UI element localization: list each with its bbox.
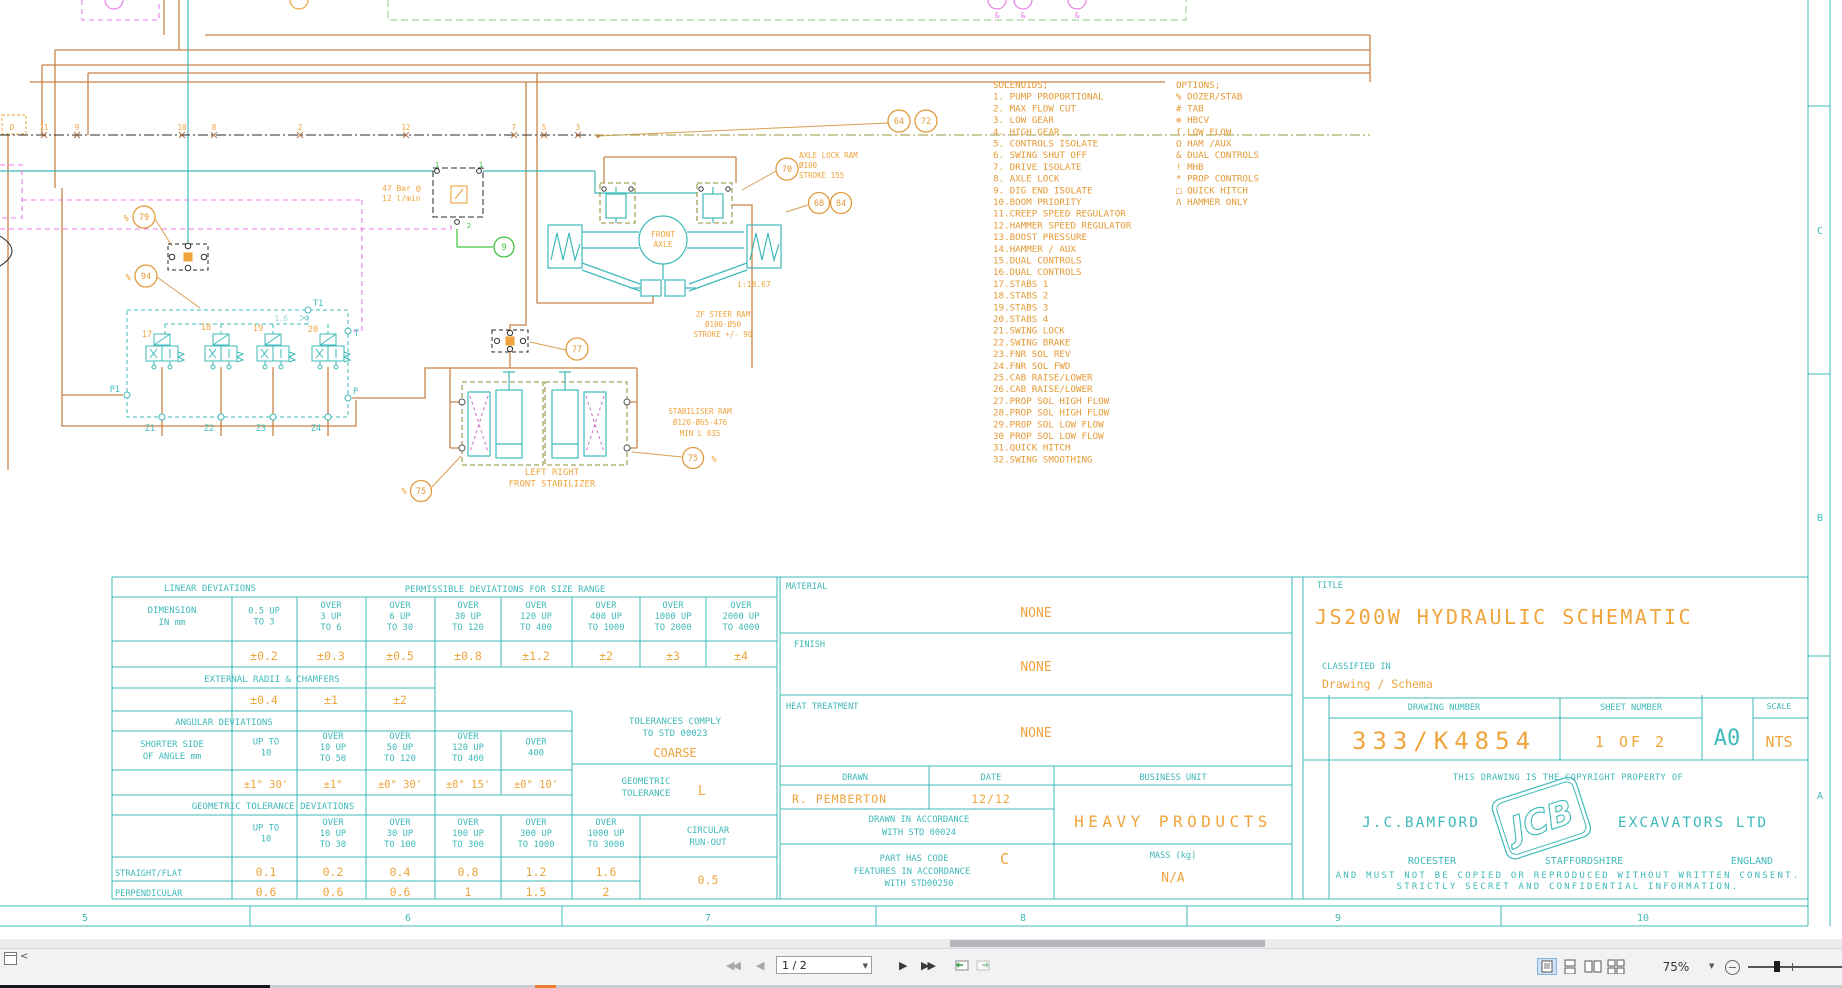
items-4: Ω HAM /AUX (1176, 139, 1232, 150)
1: OVER10 UPTO 30 (320, 818, 346, 850)
items-12: 13.BOOST PRESSURE (993, 232, 1087, 243)
bottom-4: 9 (1335, 913, 1341, 924)
5: OVER400 UPTO 1000 (587, 601, 624, 633)
0-line1: TO 3 (253, 618, 274, 628)
3-line2: TO 120 (452, 623, 484, 633)
facing-pages-view-icon[interactable] (1583, 958, 1603, 975)
zoom-dropdown-caret-icon[interactable]: ▼ (1709, 962, 1714, 970)
last-page-button[interactable]: ▶▶ (921, 959, 934, 973)
1-line2: TO 50 (320, 754, 346, 764)
runout_label-line1: RUN-OUT (689, 838, 727, 848)
items-2: ⊗ HBCV (1176, 115, 1210, 126)
callout-c77: 77 (572, 345, 582, 355)
tolerances-geo_tol_value: L (698, 784, 706, 799)
bus_nodes-3: 10 (177, 123, 187, 132)
tolerances-coarse: COARSE (653, 746, 696, 760)
drawing-address2: STAFFORDSHIRE (1545, 856, 1623, 867)
items-0: 1. PUMP PROPORTIONAL (993, 92, 1104, 103)
5: OVER1000 UPTO 3000 (587, 818, 624, 850)
items-25: 26.CAB RAISE/LOWER (993, 384, 1093, 395)
5-line2: TO 1000 (587, 623, 624, 633)
linear_values-2: ±0.5 (386, 649, 414, 663)
2: OVER30 UPTO 100 (384, 818, 416, 850)
angular_values-1: ±1° (324, 779, 343, 791)
previous-view-icon[interactable] (953, 958, 970, 972)
items-8: □ QUICK HITCH (1176, 185, 1248, 196)
straight_values-4: 1.2 (526, 865, 547, 879)
items-9: 10.BOOM PRIORITY (993, 197, 1082, 208)
items-7: * PROP CONTROLS (1176, 174, 1259, 185)
drawing-company_right: EXCAVATORS LTD (1618, 815, 1768, 831)
items-21: 22.SWING BRAKE (993, 337, 1070, 348)
drawing-title: JS200W HYDRAULIC SCHEMATIC (1315, 605, 1693, 629)
bus_nodes-1: 11 (39, 123, 48, 132)
pressure-line1: 12 l/min (382, 194, 421, 203)
straight_values-2: 0.4 (390, 865, 411, 879)
schematic-valve_port_1: 1 (435, 161, 439, 169)
green-dashed-frame (388, 0, 1186, 20)
cyan-hydraulic-lines (0, 0, 747, 291)
5-line0: OVER (595, 818, 617, 828)
perp_values-2: 0.6 (390, 885, 411, 899)
angular_values-2: ±0° 30' (378, 779, 422, 791)
1: OVER10 UPTO 50 (320, 732, 346, 764)
orange-hydraulic-lines (8, 0, 1370, 470)
3-line0: OVER (457, 732, 479, 742)
pressure: 47 Bar @12 l/min (382, 184, 421, 203)
stabilizer_caption-line1: FRONT STABILIZER (509, 480, 596, 490)
orange-valve-components (184, 186, 514, 345)
angular_values-4: ±0° 10' (514, 779, 558, 791)
items-9: Λ HAMMER ONLY (1176, 197, 1248, 208)
items-5: 6. SWING SHUT OFF (993, 150, 1087, 161)
items-26: 27.PROP SOL HIGH FLOW (993, 396, 1110, 407)
stabiliser_ram-line2: MIN L 835 (680, 429, 721, 438)
drawing-sheet: JCB LINEAR DEVIATIONSPERMISSIBLE DEVIATI… (0, 0, 1842, 940)
4-line2: TO 1000 (517, 840, 554, 850)
drawing-scale_label: SCALE (1767, 701, 1792, 711)
page-number-input[interactable]: 1 / 2 ▼ (776, 956, 872, 974)
drawing-code_line3: WITH STD00250 (885, 879, 954, 889)
5-line1: 1000 UP (587, 829, 624, 839)
horizontal-scrollbar[interactable] (0, 939, 1842, 948)
drawing-classified_value: Drawing / Schema (1322, 677, 1433, 691)
1: OVER3 UPTO 6 (320, 601, 342, 633)
ports-p: P (353, 387, 358, 397)
ports-t1: T1 (313, 299, 323, 309)
tolerances-linear_header: LINEAR DEVIATIONS (164, 584, 256, 594)
drawing-sheet_number_label: SHEET NUMBER (1600, 703, 1663, 713)
ports-p1: P1 (110, 385, 120, 395)
4: OVER400 (525, 738, 547, 759)
orifice-symbol (300, 315, 308, 321)
axle_lock_ram: AXLE LOCK RAMØ100STROKE 155 (799, 151, 858, 180)
valve_ids-3: 20 (308, 325, 318, 335)
4-line0: OVER (525, 738, 547, 748)
perp_values-4: 1.5 (526, 885, 547, 899)
zoom-out-button[interactable] (1725, 960, 1740, 975)
2-line2: TO 120 (384, 754, 416, 764)
bus_nodes-9: 3 (576, 123, 581, 132)
7-line0: OVER (730, 601, 752, 611)
items-31: 32.SWING SMOOTHING (993, 454, 1093, 465)
4-line0: OVER (525, 601, 547, 611)
items-13: 14.HAMMER / AUX (993, 244, 1076, 255)
straight_values-0: 0.1 (256, 865, 277, 879)
zoom-level-label[interactable]: 75% (1656, 960, 1696, 974)
drawing-code_line1: PART HAS CODE (880, 854, 949, 864)
0-line0: UP TO (253, 738, 279, 748)
stabilizer_caption-line0: LEFT RIGHT (525, 468, 580, 478)
drawing-date: 12/12 (971, 792, 1011, 806)
callout-c68: 68 (814, 199, 824, 209)
drawing-drawn: R. PEMBERTON (792, 792, 887, 806)
page-number-value: 1 / 2 (782, 959, 807, 972)
bottom-0: 5 (82, 913, 88, 924)
1-line2: TO 30 (320, 840, 346, 850)
items-19: 20.STABS 4 (993, 314, 1049, 325)
bottom-3: 8 (1020, 913, 1026, 924)
drawing-heat_value: NONE (1020, 726, 1051, 741)
runout_label-line0: CIRCULAR (687, 826, 730, 836)
options-header: OPTIONS; (1176, 80, 1220, 91)
0-line1: 10 (261, 749, 272, 759)
1-line1: 3 UP (320, 612, 341, 622)
front_axle-line1: AXLE (653, 240, 672, 249)
stabilizer_caption: LEFT RIGHTFRONT STABILIZER (509, 468, 596, 490)
items-10: 11.CREEP SPEED REGULATOR (993, 209, 1126, 220)
ampersand-mark: & (1021, 11, 1026, 20)
schematic-valve_port_2: 2 (467, 222, 471, 230)
3-line2: TO 300 (452, 840, 484, 850)
right-2: A (1817, 791, 1823, 802)
angular_values-3: ±0° 15' (446, 779, 490, 791)
shorter_label-line1: OF ANGLE mm (143, 752, 201, 762)
drawing-sheet_number: 1 OF 2 (1595, 733, 1667, 751)
drawing-material_label: MATERIAL (786, 582, 827, 592)
collapse-panel-icon[interactable]: < (20, 951, 28, 962)
linear_values-4: ±1.2 (522, 649, 550, 663)
1-line1: 10 UP (320, 743, 346, 753)
axle_lock_ram-line0: AXLE LOCK RAM (799, 151, 858, 160)
external_values-0: ±0.4 (250, 693, 278, 707)
drawing-finish_value: NONE (1020, 660, 1051, 675)
tolerances-angular_header: ANGULAR DEVIATIONS (175, 718, 273, 728)
3: OVER100 UPTO 300 (452, 818, 484, 850)
tolerances-straight_label: STRAIGHT/FLAT (115, 869, 182, 879)
jcb-logo: JCB (1490, 775, 1593, 861)
dimension_label: DIMENSIONIN mm (148, 606, 197, 628)
drawing-code_line2: FEATURES IN ACCORDANCE (854, 867, 971, 877)
drawing-copyright: THIS DRAWING IS THE COPYRIGHT PROPERTY O… (1453, 773, 1683, 783)
4-line1: 120 UP (520, 612, 552, 622)
3-line0: OVER (457, 601, 479, 611)
valve_ids-0: 17 (142, 330, 152, 340)
items-15: 16.DUAL CONTROLS (993, 267, 1082, 278)
next-view-icon[interactable] (975, 958, 992, 972)
tolerances-permissible_header: PERMISSIBLE DEVIATIONS FOR SIZE RANGE (405, 585, 605, 595)
steer_ram: ZF STEER RAMØ100-Ø50STROKE +/- 90 (694, 310, 753, 339)
callout-c9: 9 (501, 243, 506, 253)
shorter_label-line0: SHORTER SIDE (140, 740, 204, 750)
next-page-button[interactable]: ▶ (899, 959, 907, 973)
5-line2: TO 3000 (587, 840, 624, 850)
drawing-mass_value: N/A (1161, 871, 1185, 886)
percent-mark: % (123, 214, 128, 224)
2-line2: TO 100 (384, 840, 416, 850)
tolerances-comply1: TOLERANCES COMPLY (629, 717, 722, 727)
angular_values-0: ±1° 30' (244, 779, 288, 791)
schematic-ratio: i:18.67 (737, 280, 771, 289)
linear_values-1: ±0.3 (317, 649, 345, 663)
perp_values-5: 2 (603, 885, 610, 899)
bottom-2: 7 (705, 913, 711, 924)
4-line2: TO 400 (520, 623, 552, 633)
bus_nodes-2: 9 (75, 123, 80, 132)
pressure-line0: 47 Bar @ (382, 184, 421, 193)
2-line1: 6 UP (389, 612, 410, 622)
4-line1: 400 (528, 749, 544, 759)
first-page-button[interactable]: ◀◀ (726, 959, 739, 973)
zoom-slider-handle[interactable] (1774, 961, 1780, 972)
items-22: 23.FNR SOL REV (993, 349, 1071, 360)
drawing-drawing_number: 333/K4854 (1352, 727, 1536, 755)
valve_ids-1: 18 (201, 323, 211, 333)
percent-mark: % (401, 487, 406, 497)
front_axle-line0: FRONT (651, 230, 675, 239)
items-29: 30 PROP SOL LOW FLOW (993, 431, 1104, 442)
linear_values-0: ±0.2 (250, 649, 278, 663)
tolerances-comply2: TO STD 00023 (642, 729, 707, 739)
drawing-address1: ROCESTER (1408, 856, 1457, 867)
1-line1: 10 UP (320, 829, 346, 839)
steer_ram-line0: ZF STEER RAM (696, 310, 751, 319)
stabiliser_ram-line1: Ø120-Ø65-476 (673, 418, 728, 427)
bus_nodes-6: 12 (401, 123, 410, 132)
2: OVER6 UPTO 30 (387, 601, 413, 633)
items-30: 31.QUICK HITCH (993, 443, 1070, 454)
bus_nodes-0: D (10, 123, 15, 132)
2-line1: 30 UP (387, 829, 413, 839)
items-8: 9. DIG END ISOLATE (993, 185, 1093, 196)
3: OVER120 UPTO 400 (452, 732, 484, 764)
6-line1: 1000 UP (654, 612, 691, 622)
stabiliser_ram: STABILISER RAMØ120-Ø65-476MIN L 835 (668, 407, 732, 438)
items-28: 29.PROP SOL LOW FLOW (993, 419, 1104, 430)
callout-c75: 75 (416, 487, 426, 497)
bus_nodes-5: 2 (298, 123, 303, 132)
items-1: 2. MAX FLOW CUT (993, 103, 1076, 114)
0-line0: UP TO (253, 824, 279, 834)
callout-c64: 64 (894, 117, 904, 127)
schematic-orifice: 1.6 (274, 314, 288, 323)
2-line0: OVER (389, 601, 411, 611)
schematic-valve_port_1: 1 (479, 161, 483, 169)
3-line1: 100 UP (452, 829, 484, 839)
runout_label: CIRCULARRUN-OUT (687, 826, 730, 848)
cutoff-callout-circles (105, 0, 1086, 9)
tolerances-external_header: EXTERNAL RADII & CHAMFERS (204, 675, 339, 685)
tolerances-geo_tol1: GEOMETRIC (622, 777, 671, 787)
axle_lock_ram-line1: Ø100 (799, 161, 818, 170)
previous-page-button[interactable]: ◀ (756, 959, 764, 973)
7-line2: TO 4000 (722, 623, 759, 633)
0-line1: 10 (261, 835, 272, 845)
3-line1: 30 UP (455, 612, 481, 622)
straight_values-3: 0.8 (458, 865, 479, 879)
items-0: % DOZER/STAB (1176, 92, 1243, 103)
drawing-drawing_number_label: DRAWING NUMBER (1408, 703, 1481, 713)
1-line2: TO 6 (320, 623, 341, 633)
continuous-view-icon[interactable] (1560, 958, 1580, 975)
3-line0: OVER (457, 818, 479, 828)
solenoids-header: SOLENOIDS; (993, 80, 1048, 91)
0: UP TO10 (253, 824, 279, 845)
6-line2: TO 2000 (654, 623, 691, 633)
perp_values-0: 0.6 (256, 885, 277, 899)
callout-c79: 79 (139, 213, 149, 223)
drawing-date_label: DATE (981, 773, 1002, 783)
items-3: ſ LOW FLOW (1176, 127, 1232, 138)
drawing-title_label: TITLE (1317, 581, 1343, 591)
callout-c84: 84 (836, 199, 846, 209)
tolerances-geo_header: GEOMETRIC TOLERANCE DEVIATIONS (192, 802, 355, 812)
external_values-2: ±2 (393, 693, 407, 707)
scrollbar-thumb[interactable] (950, 940, 1265, 947)
items-18: 19.STABS 3 (993, 302, 1048, 313)
5-line1: 400 UP (590, 612, 622, 622)
linear_values-3: ±0.8 (454, 649, 482, 663)
tolerances-runout_value: 0.5 (698, 873, 719, 887)
1-line0: OVER (322, 818, 344, 828)
drawing-material_value: NONE (1020, 606, 1051, 621)
3-line2: TO 400 (452, 754, 484, 764)
tolerances-geo_tol2: TOLERANCE (622, 789, 671, 799)
drawing-legal1: AND MUST NOT BE COPIED OR REPRODUCED WIT… (1336, 871, 1801, 881)
items-24: 25.CAB RAISE/LOWER (993, 373, 1093, 384)
items-1: # TAB (1176, 103, 1204, 114)
items-20: 21.SWING LOCK (993, 326, 1065, 337)
items-6: 7. DRIVE ISOLATE (993, 162, 1082, 173)
drawing-business_unit: HEAVY PRODUCTS (1074, 812, 1272, 831)
bus_nodes-8: 5 (542, 123, 547, 132)
1-line0: OVER (320, 601, 342, 611)
tolerances-perp_label: PERPENDICULAR (115, 889, 183, 899)
shorter_label: SHORTER SIDEOF ANGLE mm (140, 740, 204, 762)
items-7: 8. AXLE LOCK (993, 174, 1060, 185)
2-line2: TO 30 (387, 623, 413, 633)
5-line0: OVER (595, 601, 617, 611)
4-line0: OVER (525, 818, 547, 828)
2-line0: OVER (389, 732, 411, 742)
single-page-view-icon[interactable] (1537, 958, 1557, 975)
front_axle: FRONTAXLE (651, 230, 675, 249)
items-14: 15.DUAL CONTROLS (993, 256, 1082, 267)
valve_ids-2: 19 (253, 324, 263, 334)
ampersand-mark: & (1075, 11, 1080, 20)
items-16: 17.STABS 1 (993, 279, 1048, 290)
z_ports-3: Z4 (311, 424, 321, 434)
bus_nodes-7: 7 (512, 123, 517, 132)
items-5: & DUAL CONTROLS (1176, 150, 1259, 161)
4-line1: 300 UP (520, 829, 552, 839)
solenoid-valve-bank (146, 334, 350, 369)
bus_nodes-4: 8 (212, 123, 217, 132)
drawing-legal2: STRICTLY SECRET AND CONFIDENTIAL INFORMA… (1397, 882, 1740, 892)
drawing-company_left: J.C.BAMFORD (1362, 815, 1480, 831)
linear_values-5: ±2 (599, 649, 613, 663)
dimension_label-line1: IN mm (158, 618, 185, 628)
perp_values-1: 0.6 (323, 885, 344, 899)
items-6: ! MHB (1176, 162, 1204, 173)
z_ports-0: Z1 (145, 424, 155, 434)
drawing-scale: NTS (1765, 733, 1792, 751)
bottom-1: 6 (405, 913, 411, 924)
percent-mark: % (711, 455, 716, 465)
7-line1: 2000 UP (722, 612, 759, 622)
right-0: C (1817, 226, 1823, 237)
drawing-business_unit_label: BUSINESS UNIT (1139, 773, 1206, 783)
steer_ram-line2: STROKE +/- 90 (694, 330, 753, 339)
0-line0: 0.5 UP (248, 607, 280, 617)
bottom-5: 10 (1637, 913, 1649, 924)
6-line0: OVER (662, 601, 684, 611)
ports-t: T (354, 329, 359, 339)
0: UP TO10 (253, 738, 279, 759)
items-4: 5. CONTROLS ISOLATE (993, 139, 1098, 150)
callout-c75: 75 (688, 454, 698, 464)
z_ports-2: Z3 (256, 424, 266, 434)
drawing-mass_label: MASS (kg) (1150, 851, 1197, 861)
drawing-size: A0 (1714, 726, 1741, 751)
z_ports-1: Z2 (204, 424, 214, 434)
zoom-slider-track[interactable] (1748, 966, 1842, 968)
callout-c72: 72 (921, 117, 931, 127)
0: 0.5 UPTO 3 (248, 607, 280, 628)
callout-c70: 70 (782, 165, 792, 175)
drawing-classified_label: CLASSIFIED IN (1322, 662, 1391, 672)
ampersand-mark: & (995, 11, 1000, 20)
green-drain-line (457, 229, 493, 247)
drawing-heat_label: HEAT TREATMENT (786, 702, 858, 712)
drawing-std24_line1: DRAWN IN ACCORDANCE (869, 815, 970, 825)
2-line1: 50 UP (387, 743, 413, 753)
3-line1: 120 UP (452, 743, 484, 753)
straight_values-1: 0.2 (323, 865, 344, 879)
items-2: 3. LOW GEAR (993, 115, 1054, 126)
pdf-viewer-window: JCB LINEAR DEVIATIONSPERMISSIBLE DEVIATI… (0, 0, 1842, 988)
dimension_label-line0: DIMENSION (148, 606, 197, 616)
items-3: 4. HIGH GEAR (993, 127, 1060, 138)
callout-c94: 94 (141, 272, 151, 282)
drawing-code_value: C (1000, 850, 1009, 868)
drawing-std24_line2: WITH STD 00024 (882, 828, 956, 838)
items-11: 12.HAMMER SPEED REGULATOR (993, 220, 1132, 231)
stabiliser_ram-line0: STABILISER RAM (668, 407, 732, 416)
2: OVER50 UPTO 120 (384, 732, 416, 764)
percent-mark: % (125, 273, 130, 283)
items-17: 18.STABS 2 (993, 291, 1048, 302)
pdf-bottom-toolbar: < ◀◀ ◀ 1 / 2 ▼ ▶ ▶▶ 75% ▼ (0, 948, 1842, 986)
6: OVER1000 UPTO 2000 (654, 601, 691, 633)
page-dropdown-caret-icon[interactable]: ▼ (863, 957, 868, 975)
1-line0: OVER (322, 732, 344, 742)
continuous-facing-view-icon[interactable] (1606, 958, 1626, 975)
2-line0: OVER (389, 818, 411, 828)
drawing-finish_label: FINISH (794, 640, 825, 650)
panel-toggle-icon[interactable] (4, 952, 17, 965)
items-23: 24.FNR SOL FWD (993, 361, 1070, 372)
